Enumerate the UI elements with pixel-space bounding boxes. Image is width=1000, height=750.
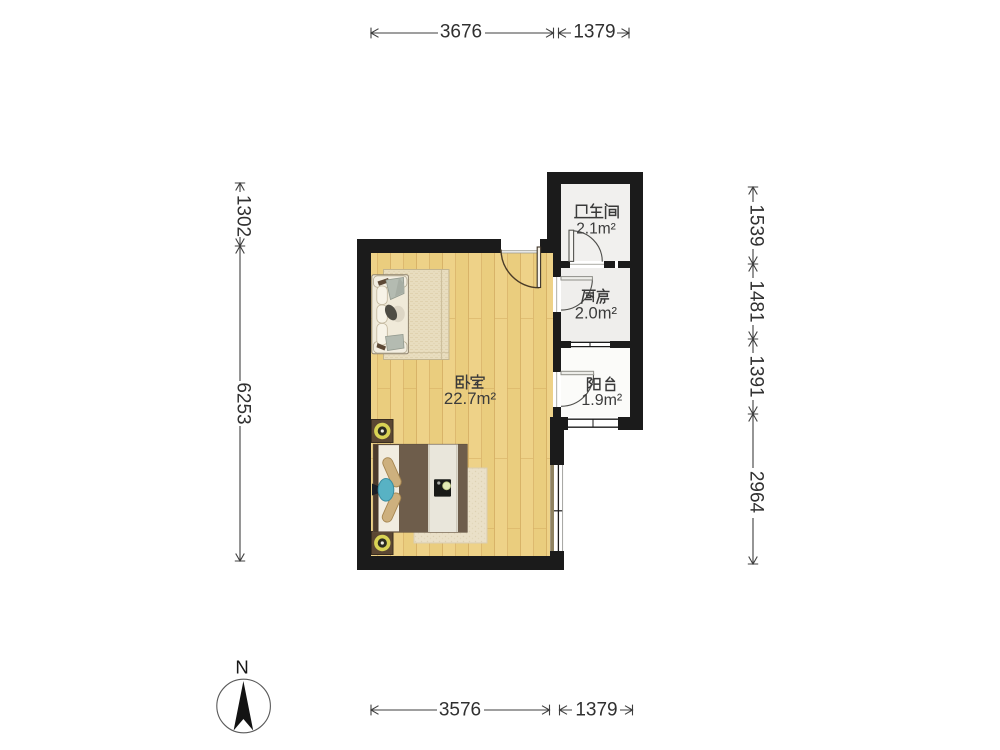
svg-text:N: N — [235, 657, 248, 678]
svg-text:1391: 1391 — [746, 355, 767, 397]
svg-text:1379: 1379 — [575, 700, 617, 721]
svg-text:1.9m²: 1.9m² — [581, 392, 623, 409]
svg-text:1379: 1379 — [573, 22, 615, 43]
svg-text:6253: 6253 — [233, 382, 254, 424]
svg-text:22.7m²: 22.7m² — [444, 389, 497, 408]
svg-text:2.1m²: 2.1m² — [576, 220, 616, 237]
svg-text:3676: 3676 — [440, 22, 482, 43]
svg-text:3576: 3576 — [439, 700, 481, 721]
svg-text:1539: 1539 — [746, 204, 767, 246]
svg-text:1481: 1481 — [746, 280, 767, 322]
svg-text:2964: 2964 — [746, 471, 767, 514]
svg-text:2.0m²: 2.0m² — [575, 305, 618, 323]
svg-text:1302: 1302 — [233, 195, 254, 237]
